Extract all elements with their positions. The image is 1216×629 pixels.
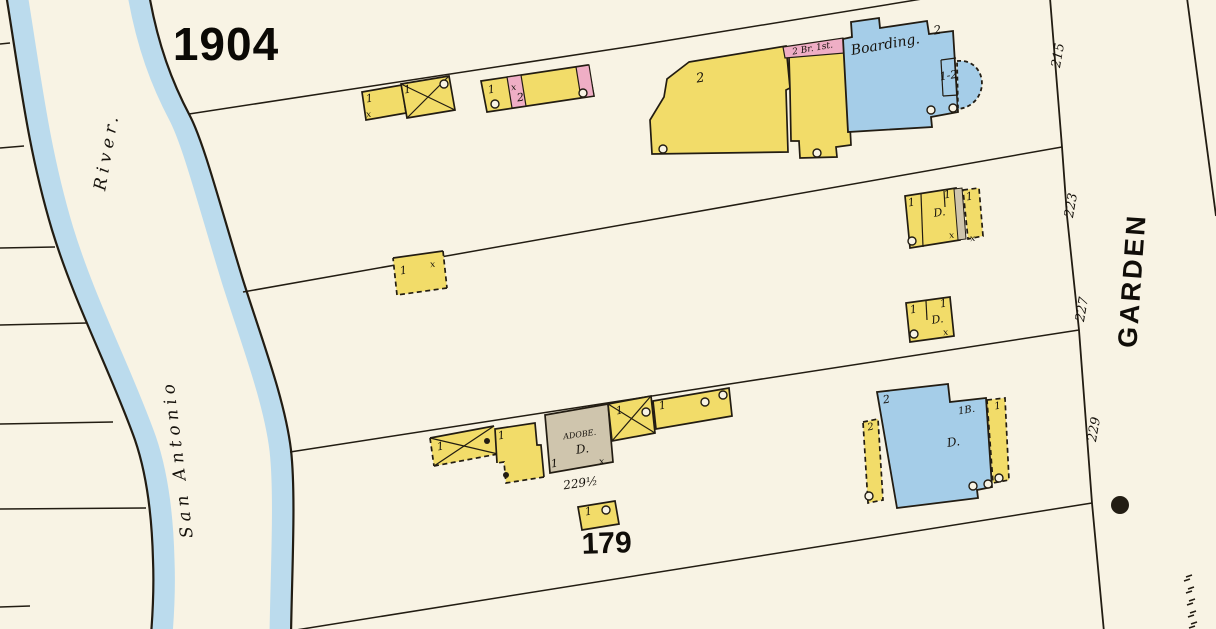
- river-wash-left: [17, 0, 164, 629]
- label-house-number-227: 227: [1073, 295, 1092, 324]
- label-b9-dwelling: D.: [945, 434, 961, 450]
- sanborn-map-page: 1904River.San AntonioGARDEN2152232272291…: [0, 0, 1216, 629]
- complex-right-wing: [789, 48, 851, 158]
- label-house-number-223: 223: [1062, 192, 1081, 220]
- boarding-bay: [957, 61, 982, 109]
- label-adobe-dwelling: D.: [574, 441, 590, 457]
- label-street-name-garden: GARDEN: [1112, 212, 1151, 349]
- label-b4-dwelling: D.: [932, 205, 947, 220]
- building-boarding-complex: [650, 18, 982, 158]
- label-b5-dwelling: D.: [930, 312, 945, 327]
- complex-left-wing: [650, 46, 790, 154]
- san-antonio-river: [6, 0, 293, 629]
- label-house-number-215: 215: [1049, 42, 1068, 70]
- label-block-number: 179: [581, 526, 632, 561]
- label-boarding-bay-stories: 1-2: [939, 68, 959, 84]
- building-frame-brick-ends: [481, 65, 594, 112]
- buildings: [362, 18, 1009, 530]
- hydrant-dot: [1111, 496, 1129, 514]
- street-right-edge: [1187, 0, 1216, 216]
- label-adobe-address: 229½: [561, 474, 598, 493]
- map-canvas: 1904River.San AntonioGARDEN2152232272291…: [0, 0, 1216, 629]
- label-house-number-229: 229: [1085, 416, 1104, 444]
- label-year: 1904: [173, 18, 279, 70]
- fence-tick-marks: [1184, 575, 1197, 628]
- label-river-name-river: River.: [90, 110, 124, 193]
- west-bank-lot-lines: [0, 43, 146, 607]
